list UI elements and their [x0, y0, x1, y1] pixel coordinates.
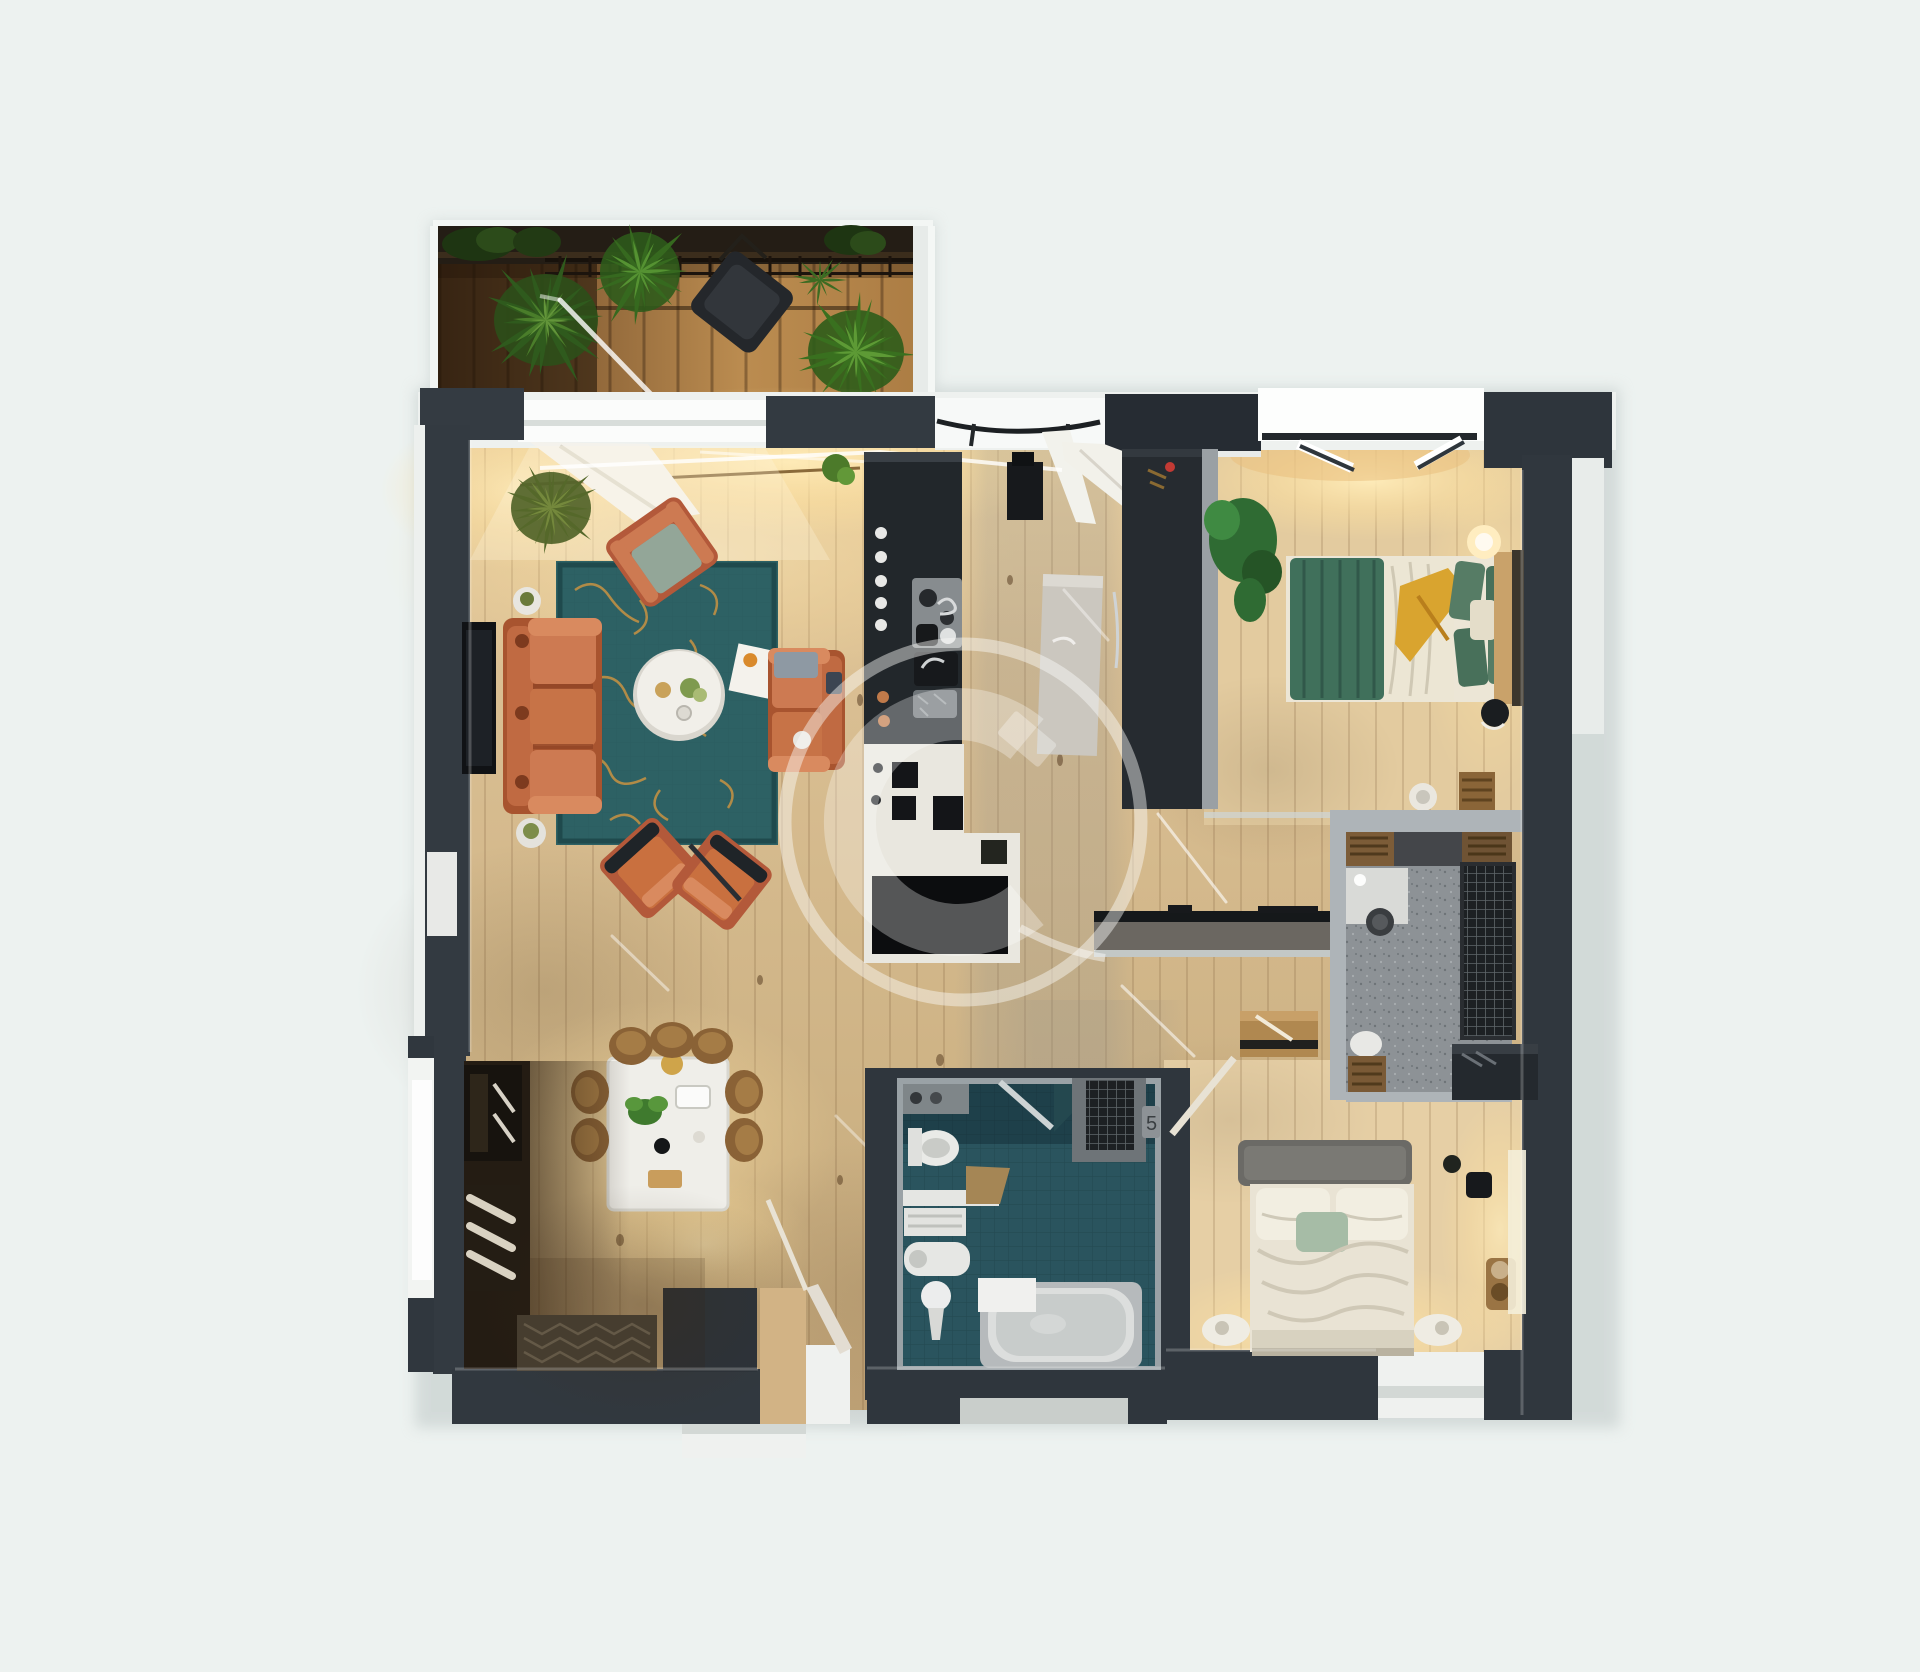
- svg-text:5: 5: [1146, 1113, 1157, 1135]
